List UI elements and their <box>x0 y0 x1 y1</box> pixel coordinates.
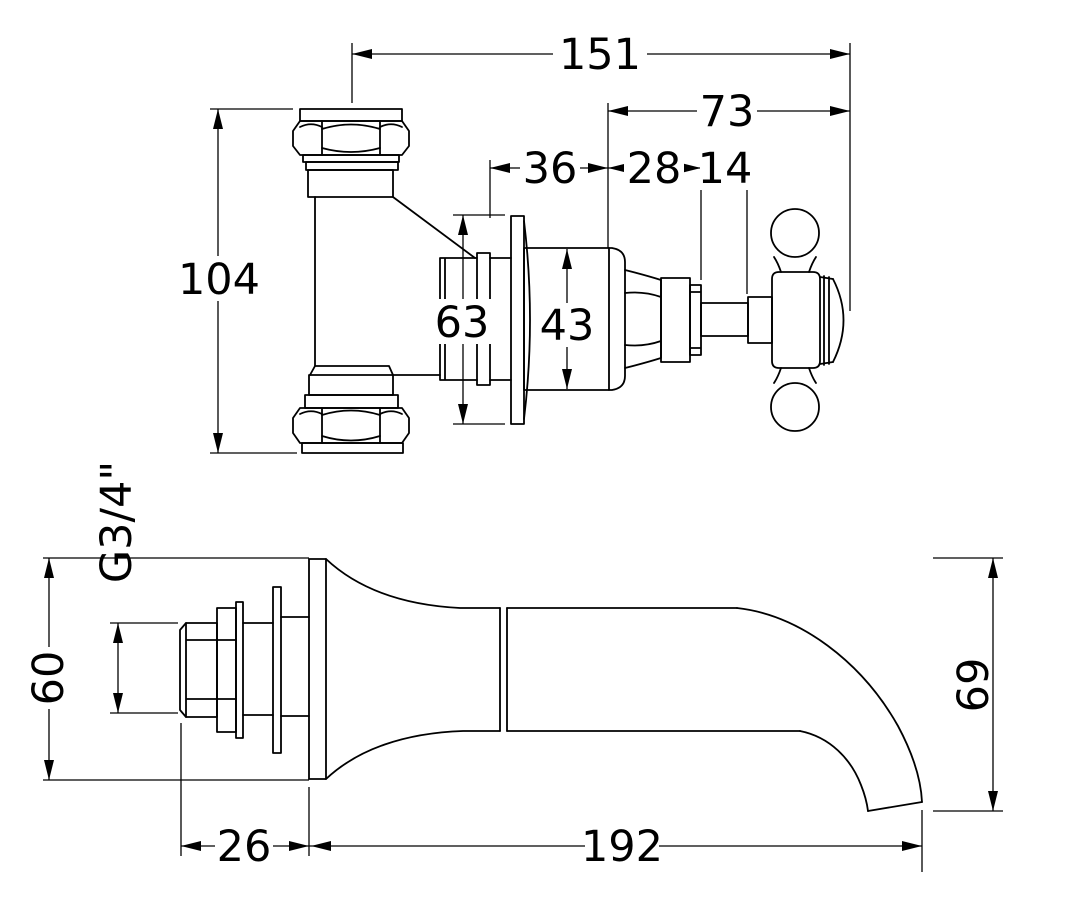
dim-36-label: 36 <box>523 144 578 194</box>
dim-151: 151 <box>352 30 850 311</box>
dim-36-arrow-right <box>588 163 608 173</box>
dim-151-label: 151 <box>559 30 641 80</box>
dim-73-label: 73 <box>700 87 755 137</box>
spout-trumpet-bottom <box>326 731 500 779</box>
top-cap <box>300 109 402 121</box>
dim-192-arrow-left <box>311 841 331 851</box>
technical-drawing: 151 73 36 28 14 <box>0 0 1080 918</box>
dim-thread-label: G3/4" <box>92 461 142 583</box>
top-hex-facet-arcs <box>300 124 402 152</box>
handle-neck-bottom <box>774 368 816 383</box>
dim-60: 60 <box>24 558 309 780</box>
dim-69-label: 69 <box>949 658 999 713</box>
dim-151-arrow-right <box>830 49 850 59</box>
dim-26-arrow-right <box>289 841 309 851</box>
dim-thread-arrow-top <box>113 623 123 643</box>
dim-60-arrow-bottom <box>44 760 54 780</box>
dim-60-label: 60 <box>24 651 74 706</box>
spout-tail-connector <box>180 587 309 753</box>
gland-nut <box>625 270 661 368</box>
dim-69-arrow-bottom <box>988 791 998 811</box>
spout-trumpet-top <box>326 559 500 608</box>
bottom-ring <box>305 395 398 408</box>
top-collar <box>308 170 393 197</box>
stem-ring <box>690 285 701 355</box>
dim-36-arrow-left <box>490 163 510 173</box>
dim-thread-arrow-bottom <box>113 693 123 713</box>
dim-26-label: 26 <box>217 822 272 872</box>
handle-ball-bottom <box>771 383 819 431</box>
dim-192-arrow-right <box>902 841 922 851</box>
dim-43: 43 <box>540 249 595 389</box>
cross-handle <box>748 209 844 431</box>
sleeve-to-flange <box>490 258 511 380</box>
dim-43-label: 43 <box>540 301 595 351</box>
dim-104-arrow-bottom <box>213 433 223 453</box>
dim-28-label: 28 <box>627 144 682 194</box>
bottom-cap <box>302 443 403 453</box>
dim-192-label: 192 <box>581 822 663 872</box>
dim-43-arrow-bottom <box>562 369 572 389</box>
dim-73-arrow-left <box>608 106 628 116</box>
threaded-tail-lines <box>186 623 236 717</box>
dim-73-arrow-right <box>830 106 850 116</box>
spout-mouth <box>868 802 922 811</box>
dim-192: 192 <box>309 810 922 872</box>
spacer-cylinder <box>661 278 690 362</box>
spout-outer-curve <box>737 608 922 802</box>
dim-26-arrow-left <box>181 841 201 851</box>
handle-hub <box>748 297 772 343</box>
shank-2 <box>281 617 309 716</box>
handle-dome-arc <box>833 279 844 362</box>
spout-view <box>180 559 922 811</box>
dim-63-label: 63 <box>435 298 490 348</box>
dim-43-arrow-top <box>562 249 572 269</box>
cartridge-end-cap <box>609 248 625 390</box>
spout-inner-curve <box>800 731 868 811</box>
spout-wall-plate <box>309 559 326 779</box>
handle-neck-top <box>774 257 816 272</box>
bottom-collar <box>309 375 393 395</box>
dim-26: 26 <box>181 723 309 872</box>
backnut <box>217 608 236 732</box>
top-ring-1 <box>303 155 399 162</box>
dim-63: 63 <box>434 215 505 424</box>
dim-151-arrow-left <box>352 49 372 59</box>
handle-body <box>772 272 820 368</box>
dim-104-arrow-top <box>213 109 223 129</box>
drawing-canvas: 151 73 36 28 14 <box>0 0 1080 918</box>
spindle-stem <box>701 303 748 336</box>
dim-104-label: 104 <box>178 255 260 305</box>
dim-60-arrow-top <box>44 558 54 578</box>
valve-body <box>293 109 475 453</box>
pipe-step <box>310 366 393 375</box>
bottom-hex-facet-arcs <box>300 411 402 441</box>
dim-63-arrow-bottom <box>458 404 468 424</box>
dim-thread: G3/4" <box>92 461 178 713</box>
washer-small <box>236 602 243 738</box>
washer-large <box>273 587 281 753</box>
flange-plate <box>511 216 524 424</box>
dim-63-arrow-top <box>458 215 468 235</box>
dim-14-label: 14 <box>698 144 753 194</box>
dim-69: 69 <box>933 558 1003 811</box>
dimensions: 151 73 36 28 14 <box>24 30 1003 872</box>
dim-69-arrow-top <box>988 558 998 578</box>
top-hex-nut <box>293 121 409 155</box>
spout-joint <box>500 608 507 731</box>
dim-104: 104 <box>178 109 297 453</box>
shank-1 <box>243 623 273 715</box>
spout-body <box>309 559 922 811</box>
bottom-hex-nut <box>293 408 409 443</box>
top-ring-2 <box>306 162 398 170</box>
handle-ball-top <box>771 209 819 257</box>
handle-dome-rings <box>820 276 833 365</box>
